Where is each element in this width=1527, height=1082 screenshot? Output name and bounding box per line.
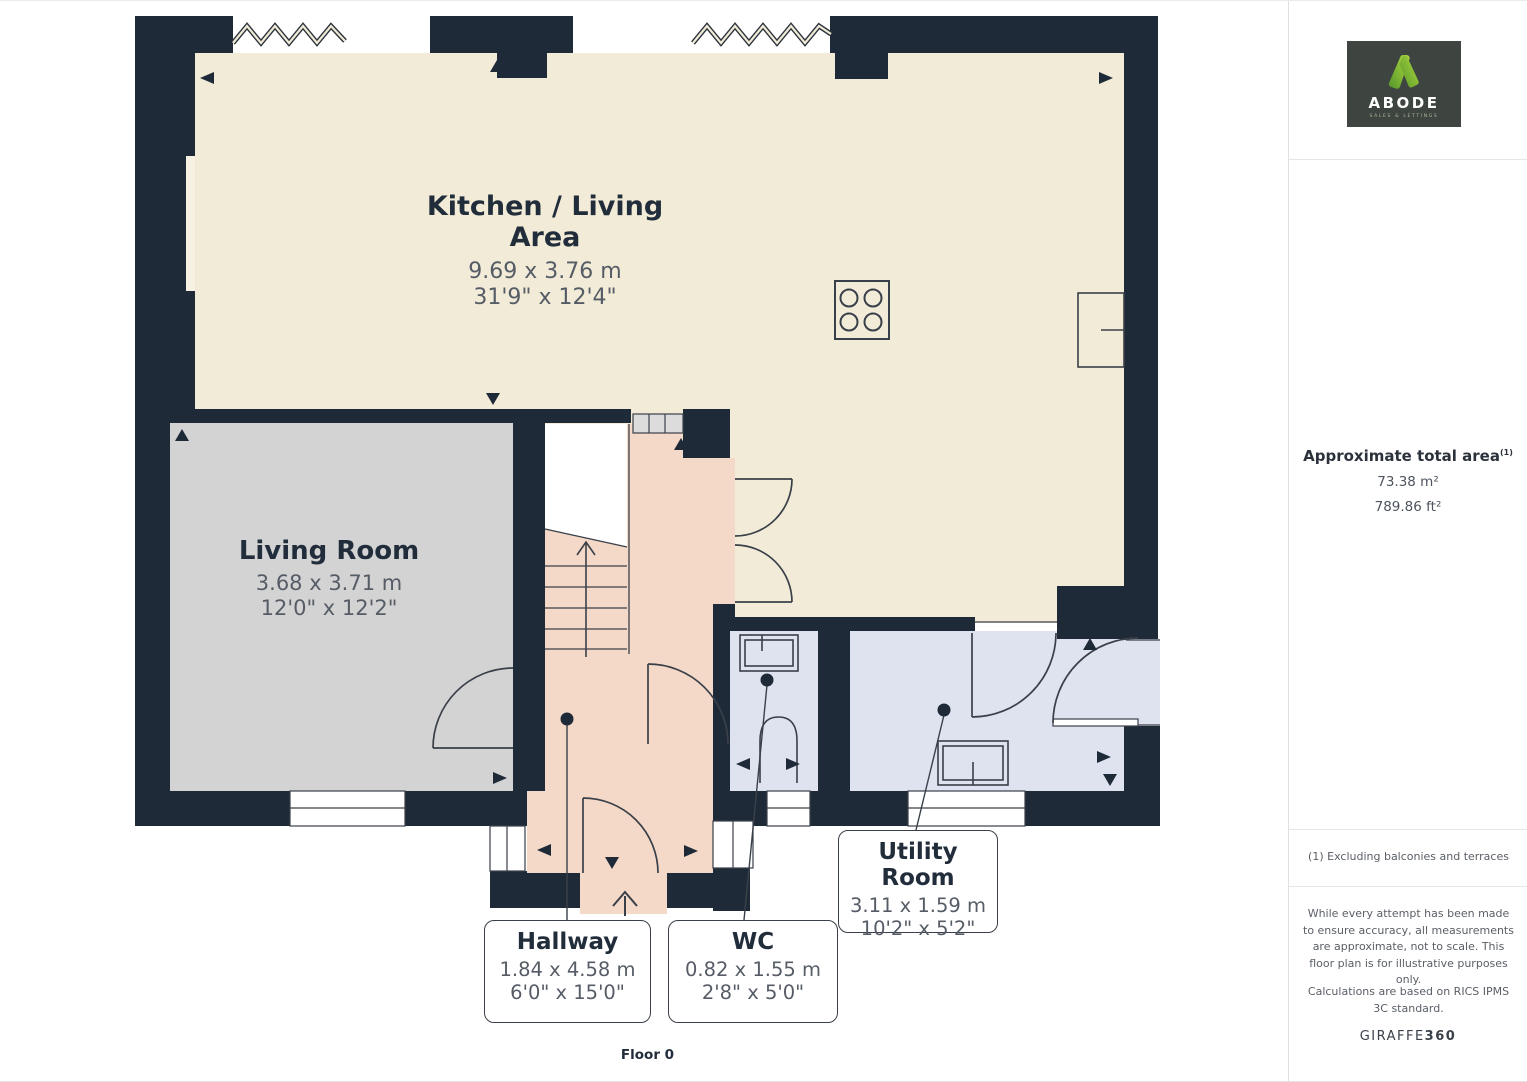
sidebar-divider [1289, 159, 1527, 160]
floorplan-area: Kitchen / Living Area 9.69 x 3.76 m 31'9… [0, 1, 1288, 1081]
floorplan-canvas [0, 1, 1288, 1081]
giraffe360-brand: GIRAFFE360 [1289, 1029, 1527, 1044]
room-dim-m: 1.84 x 4.58 m [491, 958, 644, 981]
sidebar-divider [1289, 829, 1527, 830]
room-name: WC [675, 929, 831, 955]
door-opening-fill [713, 458, 735, 604]
wc-callout: WC 0.82 x 1.55 m 2'8" x 5'0" [668, 920, 838, 1023]
abode-logo-icon [1378, 50, 1430, 92]
utility-room-callout: Utility Room 3.11 x 1.59 m 10'2" x 5'2" [838, 830, 998, 933]
vestibule-fill [527, 791, 713, 873]
room-dim-m: 3.11 x 1.59 m [845, 894, 991, 917]
sidebar: ABODE SALES & LETTINGS Approximate total… [1288, 1, 1527, 1081]
left-wall-window-icon [186, 156, 195, 291]
floorplan-page: Kitchen / Living Area 9.69 x 3.76 m 31'9… [0, 0, 1527, 1082]
floor-label: Floor 0 [560, 1047, 735, 1063]
room-fills [170, 53, 1160, 914]
room-name: Utility Room [845, 839, 991, 891]
giraffe-text: GIRAFFE [1360, 1029, 1425, 1044]
giraffe-360-text: 360 [1425, 1029, 1457, 1044]
stair-void [545, 424, 627, 547]
area-footnote-marker: (1) [1500, 448, 1513, 457]
area-title: Approximate total area [1303, 447, 1500, 465]
sidebar-divider [1289, 886, 1527, 887]
hallway-callout: Hallway 1.84 x 4.58 m 6'0" x 15'0" [484, 920, 651, 1023]
room-dim-ft: 10'2" x 5'2" [845, 917, 991, 940]
room-dim-m: 0.82 x 1.55 m [675, 958, 831, 981]
room-dim-ft: 6'0" x 15'0" [491, 981, 644, 1004]
total-area-block: Approximate total area(1) 73.38 m² 789.8… [1289, 447, 1527, 515]
logo-tagline: SALES & LETTINGS [1370, 114, 1439, 119]
area-m2: 73.38 m² [1289, 474, 1527, 490]
utility-fill [850, 631, 1126, 791]
utility-doorway-fill [1126, 639, 1160, 726]
standard-text: Calculations are based on RICS IPMS 3C s… [1303, 984, 1514, 1017]
footnote-text: (1) Excluding balconies and terraces [1303, 849, 1514, 866]
hallway-fill [627, 424, 713, 791]
disclaimer-text: While every attempt has been made to ens… [1303, 906, 1514, 989]
internal-window-icon [633, 414, 683, 433]
living-room-fill [170, 423, 513, 791]
agency-logo: ABODE SALES & LETTINGS [1347, 41, 1461, 127]
area-ft2: 789.86 ft² [1289, 499, 1527, 515]
room-dim-ft: 2'8" x 5'0" [675, 981, 831, 1004]
room-name: Hallway [491, 929, 644, 955]
logo-brand-text: ABODE [1369, 94, 1440, 112]
